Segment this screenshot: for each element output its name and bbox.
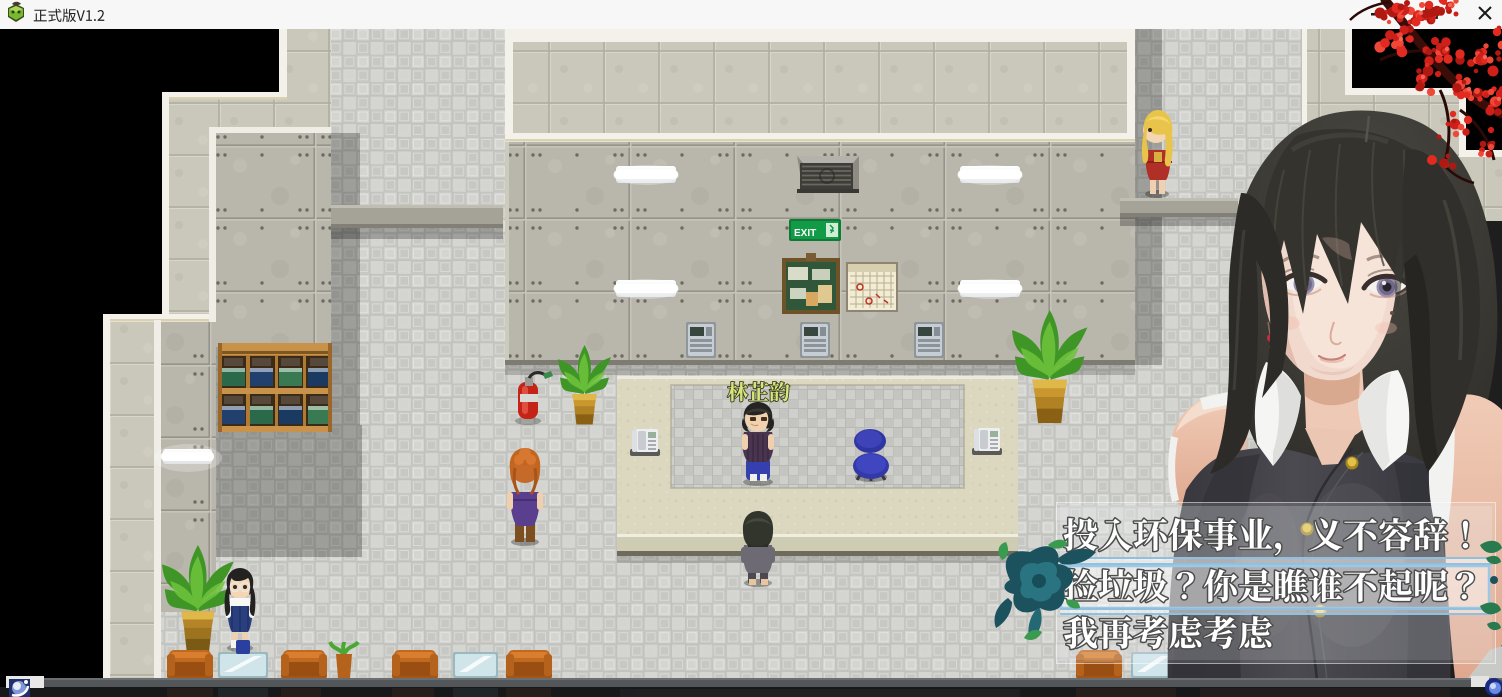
svg-text:EXIT: EXIT: [794, 228, 816, 239]
